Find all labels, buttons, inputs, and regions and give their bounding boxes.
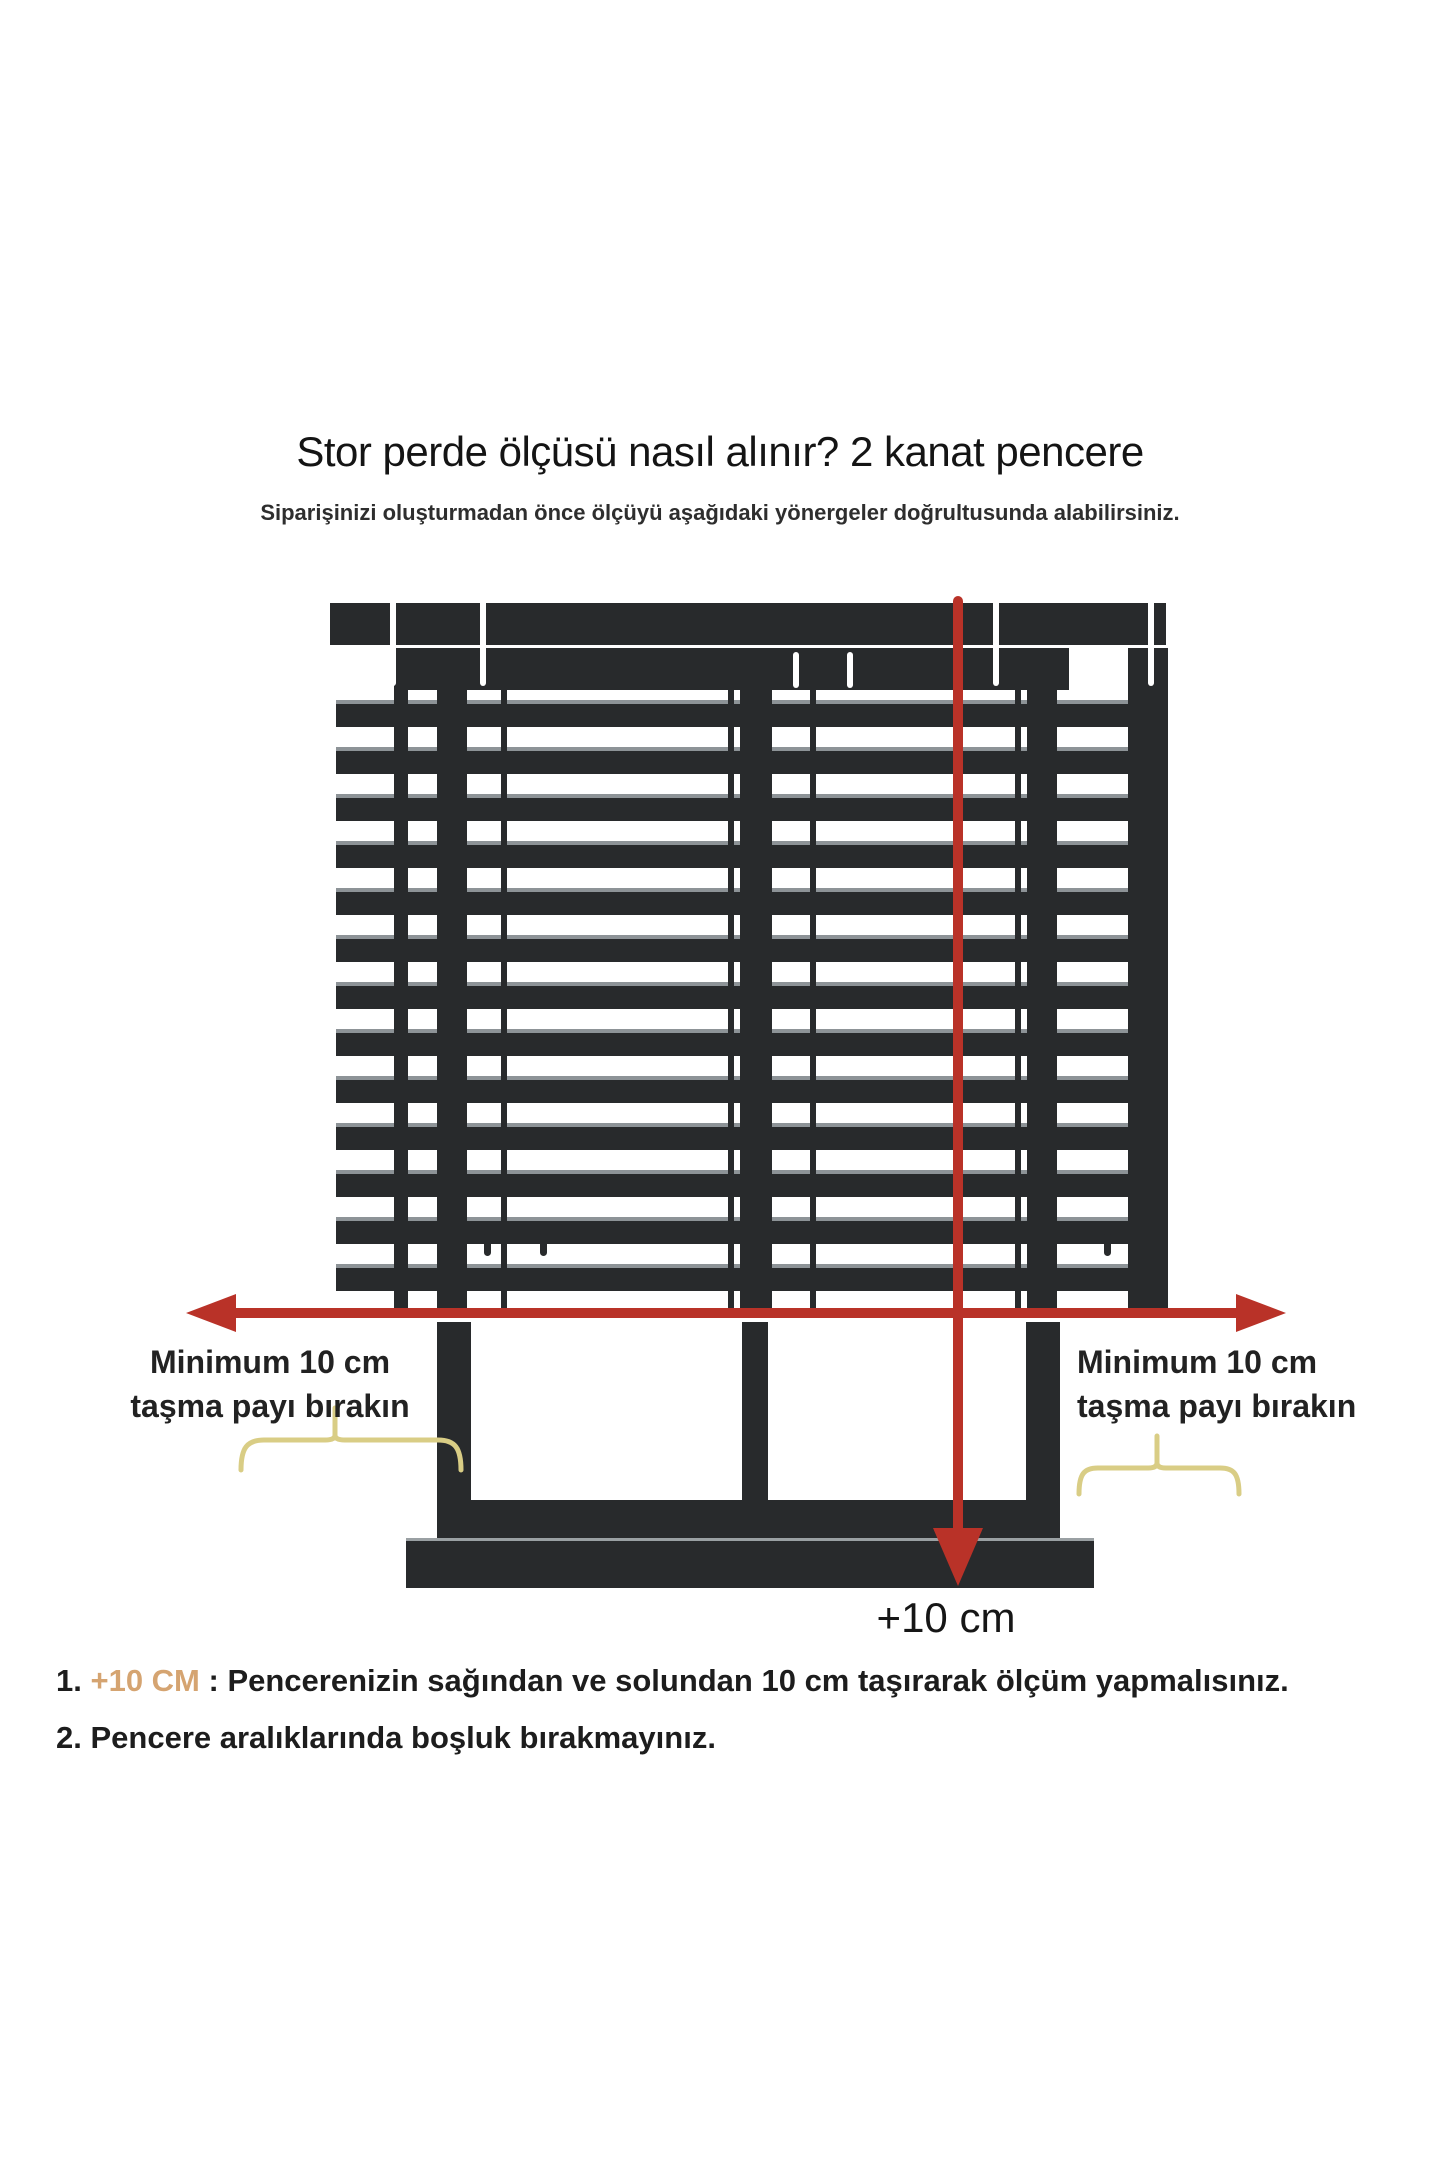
note-line-1: 1. +10 CM : Pencerenizin sağından ve sol… [56, 1652, 1396, 1709]
blind-ladder-tape [501, 648, 507, 1310]
blind-ladder-tape [740, 648, 772, 1310]
blind-ladder-tape [1027, 648, 1057, 1310]
right-overhang-label: Minimum 10 cm taşma payı bırakın [1077, 1340, 1417, 1428]
note-1-number: 1. [56, 1663, 82, 1698]
mount-bracket-slit [1148, 598, 1154, 686]
page-subtitle: Siparişinizi oluşturmadan önce ölçüyü aş… [0, 500, 1440, 526]
blind-right-edge-tape [1128, 648, 1168, 1310]
height-arrow-shaft [953, 596, 963, 1536]
right-overhang-label-line1: Minimum 10 cm [1077, 1340, 1417, 1384]
cord-tassel [540, 1234, 547, 1256]
note-2-text: Pencere aralıklarında boşluk bırakmayını… [90, 1720, 715, 1755]
blind-headrail [330, 603, 1166, 645]
note-1-highlight: +10 CM [82, 1663, 200, 1698]
note-line-2: 2. Pencere aralıklarında boşluk bırakmay… [56, 1709, 1396, 1766]
right-overhang-brace-icon [1076, 1432, 1242, 1500]
note-2-number: 2. [56, 1720, 82, 1755]
infographic-canvas: Stor perde ölçüsü nasıl alınır? 2 kanat … [0, 0, 1440, 2160]
right-overhang-label-line2: taşma payı bırakın [1077, 1384, 1417, 1428]
blind-ladder-tape [437, 648, 467, 1310]
window-right-jamb [1026, 1322, 1060, 1500]
left-overhang-label-line1: Minimum 10 cm [95, 1340, 445, 1384]
page-title: Stor perde ölçüsü nasıl alınır? 2 kanat … [0, 428, 1440, 476]
blind-ladder-tape [810, 648, 816, 1310]
width-arrow-right-head-icon [1236, 1294, 1286, 1332]
cord-tassel [484, 1234, 491, 1256]
note-1-separator: : [200, 1663, 228, 1698]
left-overhang-label-line2: taşma payı bırakın [95, 1384, 445, 1428]
window-center-mullion [742, 1322, 768, 1500]
mount-bracket-slit [480, 598, 486, 686]
height-arrow-down-head-icon [933, 1528, 983, 1586]
mount-bracket-slit [993, 598, 999, 686]
window-sill [406, 1538, 1094, 1588]
plus-10cm-label: +10 cm [846, 1594, 1046, 1642]
blind-ladder-tape [1015, 648, 1021, 1310]
left-overhang-label: Minimum 10 cm taşma payı bırakın [95, 1340, 445, 1428]
note-1-text: Pencerenizin sağından ve solundan 10 cm … [227, 1663, 1288, 1698]
mount-bracket-slit [847, 652, 853, 688]
cord-tassel [1104, 1234, 1111, 1256]
width-arrow-left-head-icon [186, 1294, 236, 1332]
mount-bracket-slit [390, 598, 396, 686]
blind-ladder-tape [728, 648, 734, 1310]
width-arrow-shaft [232, 1308, 1240, 1318]
notes-list: 1. +10 CM : Pencerenizin sağından ve sol… [56, 1652, 1396, 1766]
blind-ladder-tape [394, 648, 408, 1310]
mount-bracket-slit [793, 652, 799, 688]
